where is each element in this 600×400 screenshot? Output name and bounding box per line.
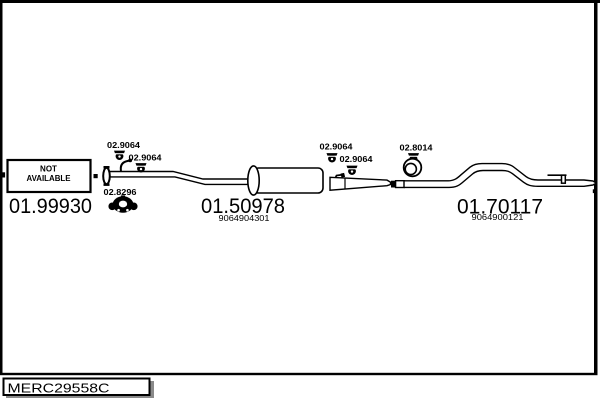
exhaust-diagram: NOT AVAILABLE 02.9064 02.9064 02.8296 01… [0, 0, 600, 400]
clamp-label: 02.9064 [129, 154, 163, 163]
not-available-line2: AVAILABLE [27, 174, 72, 183]
clamp-label: 02.9064 [340, 155, 374, 164]
clamp-icon [347, 166, 358, 175]
connector-sleeve [396, 181, 405, 188]
section-tail-pipe: 02.8014 01.70117 9064900121 [391, 144, 597, 223]
frame-top-border [0, 0, 600, 3]
front-pipe-bottom-line [110, 177, 250, 185]
mount-dot [593, 189, 597, 193]
mount-dot [1, 172, 6, 177]
frame-right-border [594, 0, 598, 375]
diagram-code: MERC29558C [8, 380, 110, 395]
outlet-hook-tab [341, 173, 346, 178]
silencer-end-cap [248, 166, 259, 195]
clamp-icon [327, 153, 338, 162]
oem-number: 9064900121 [472, 212, 524, 222]
not-available-line1: NOT [40, 165, 57, 174]
clamp-label: 02.8296 [104, 188, 138, 197]
clamp-icon [114, 151, 125, 160]
oem-number: 9064904301 [219, 213, 270, 223]
footer: MERC29558C [4, 379, 155, 399]
frame-bottom-border [0, 373, 598, 375]
clamp-label: 02.9064 [320, 143, 354, 152]
hanger-label: 02.8014 [400, 144, 434, 153]
part-number: 01.99930 [9, 195, 92, 218]
diagram-canvas: NOT AVAILABLE 02.9064 02.9064 02.8296 01… [0, 0, 600, 400]
tail-cone [330, 177, 391, 190]
frame-left-border [0, 0, 3, 375]
pipe-flange [103, 168, 110, 184]
tail-hanger-tab [562, 175, 566, 183]
clamp-label: 02.9064 [107, 141, 141, 150]
silencer-body [254, 168, 324, 193]
flange-clamp-icon [108, 195, 137, 212]
section-middle-silencer: 02.9064 02.9064 01.50978 9064904301 [201, 143, 391, 224]
joint-dot [94, 174, 98, 178]
tail-pipe-body [404, 164, 596, 188]
